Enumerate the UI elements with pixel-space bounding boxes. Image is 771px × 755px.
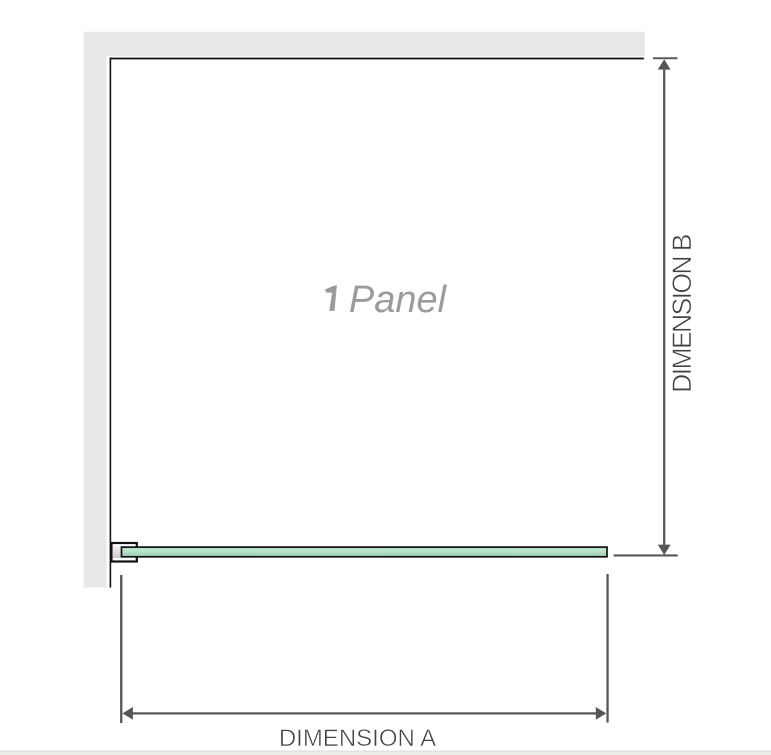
- svg-text:DIMENSION B: DIMENSION B: [667, 234, 697, 393]
- svg-text:DIMENSION A: DIMENSION A: [279, 725, 436, 752]
- svg-text:Panel: Panel: [349, 279, 448, 321]
